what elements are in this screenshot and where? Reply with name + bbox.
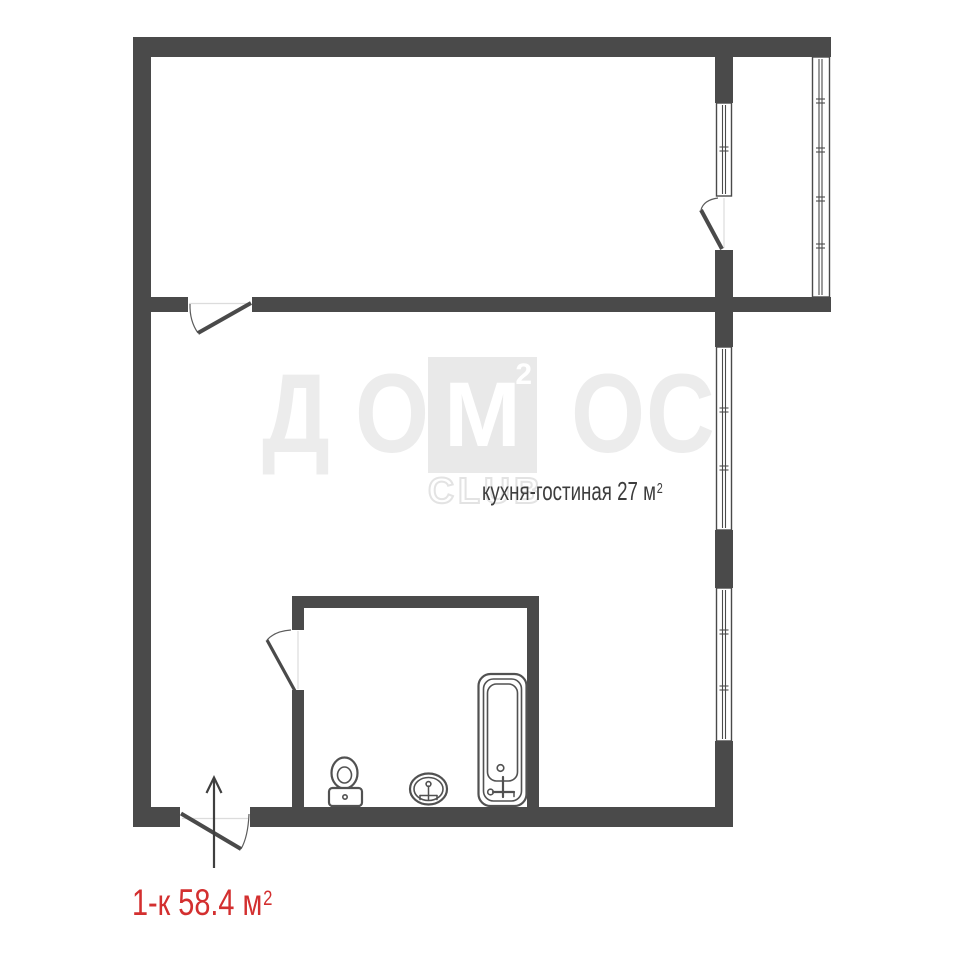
bathtub-icon bbox=[479, 674, 527, 806]
entrance-arrow bbox=[207, 778, 222, 869]
room-area-label: кухня-гостиная 27 м2 bbox=[482, 478, 733, 504]
apartment-area-text: 1-к 58.4 м bbox=[132, 882, 262, 923]
apartment-area-label: 1-к 58.4 м2 bbox=[132, 884, 312, 921]
window-kitchen-2 bbox=[717, 588, 732, 741]
floor-plan-canvas: Д О М 2 О С CLUB bbox=[0, 0, 960, 960]
apartment-area-superscript: 2 bbox=[263, 886, 272, 910]
bathroom-door bbox=[267, 630, 298, 691]
floor-plan-drawing bbox=[0, 0, 960, 960]
room-area-text: кухня-гостиная 27 м bbox=[482, 476, 656, 506]
sink-icon bbox=[410, 774, 447, 805]
toilet-icon bbox=[329, 758, 362, 807]
balcony-glazing-window bbox=[813, 57, 830, 297]
room-door bbox=[189, 303, 251, 333]
room-area-superscript: 2 bbox=[657, 480, 663, 497]
balcony-door-window bbox=[717, 103, 732, 196]
balcony-door bbox=[701, 198, 724, 249]
